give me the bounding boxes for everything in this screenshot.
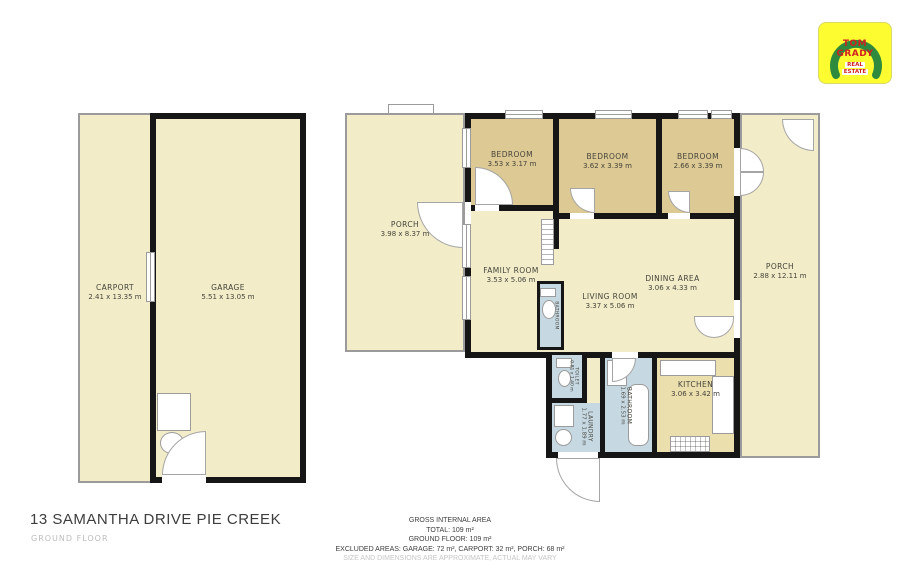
summary-ground-floor: GROUND FLOOR: 109 m² [250, 535, 650, 545]
door-opening [475, 205, 499, 211]
door-arc [556, 458, 600, 502]
family-room-label: FAMILY ROOM 3.53 x 5.06 m [465, 266, 557, 284]
kitchen-counter [660, 360, 716, 376]
bedroom-3-label: BEDROOM 2.66 x 3.39 m [662, 152, 734, 170]
dining-area-label: DINING AREA 3.06 x 4.33 m [620, 274, 725, 292]
agency-logo: TOM GRADY REAL ESTATE [818, 22, 892, 84]
garage-label: GARAGE 5.51 x 13.05 m [152, 283, 304, 301]
logo-text-grady: GRADY [819, 49, 891, 59]
linen-closet [541, 219, 554, 265]
oven-fixture [670, 436, 710, 452]
porch-left-label: PORCH 3.98 x 8.37 m [345, 220, 465, 238]
summary-heading: GROSS INTERNAL AREA [250, 516, 650, 526]
living-room-label: LIVING ROOM 3.37 x 5.06 m [560, 292, 660, 310]
logo-text-tom: TOM [819, 39, 891, 49]
door-opening [570, 213, 594, 219]
summary-disclaimer: SIZE AND DIMENSIONS ARE APPROXIMATE, ACT… [250, 554, 650, 562]
laundry-sink-fixture [555, 429, 572, 446]
bedroom-2-label: BEDROOM 3.62 x 3.39 m [559, 152, 656, 170]
bedroom-1-label: BEDROOM 3.53 x 3.17 m [471, 150, 553, 168]
door-opening [734, 300, 740, 338]
porch-right-label: PORCH 2.88 x 12.11 m [742, 262, 818, 280]
garage-door-opening [162, 475, 206, 483]
summary-total: TOTAL: 109 m² [250, 526, 650, 536]
bathroom-label: BATHROOM 1.69 x 2.53 m [600, 358, 652, 452]
window [711, 110, 732, 119]
kitchen-label: KITCHEN 3.06 x 3.42 m [657, 380, 734, 398]
toilet-label: TOILET 0.81 x 1.40 m [564, 353, 584, 399]
summary-excluded: EXCLUDED AREAS: GARAGE: 72 m², CARPORT: … [250, 545, 650, 555]
window [462, 128, 471, 168]
window [678, 110, 708, 119]
logo-text-estate: ESTATE [819, 69, 891, 75]
page-title: 13 SAMANTHA DRIVE PIE CREEK [30, 511, 281, 528]
carport-label: CARPORT 2.41 x 13.35 m [78, 283, 152, 301]
small-bathroom-label: BATHROOM [548, 281, 564, 350]
laundry-tub-fixture [157, 393, 191, 431]
door-opening [668, 213, 690, 219]
window [595, 110, 632, 119]
washer-fixture [554, 405, 574, 427]
floor-label: GROUND FLOOR [31, 534, 109, 543]
laundry-label: LAUNDRY 1.77 x 1.89 m [572, 400, 602, 452]
area-summary: GROSS INTERNAL AREA TOTAL: 109 m² GROUND… [250, 516, 650, 562]
window [505, 110, 543, 119]
porch-step [388, 104, 434, 114]
floor-plan-canvas: TOM GRADY REAL ESTATE CARPORT 2.41 x 13.… [0, 0, 900, 562]
logo-text-real: REAL [819, 62, 891, 68]
